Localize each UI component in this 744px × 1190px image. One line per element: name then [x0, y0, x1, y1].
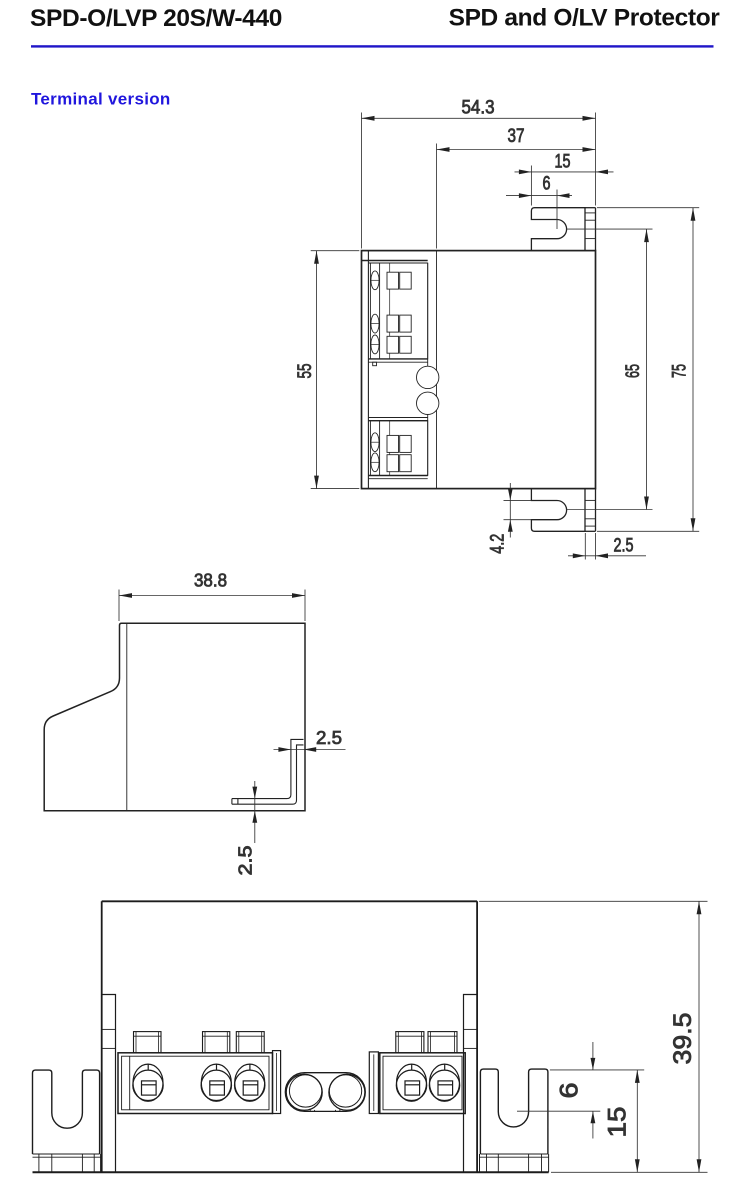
- svg-text:75: 75: [669, 364, 690, 378]
- svg-text:38.8: 38.8: [194, 569, 227, 590]
- svg-text:2.5: 2.5: [316, 727, 342, 748]
- svg-text:6: 6: [543, 173, 551, 194]
- svg-text:SPD and O/LV Protector: SPD and O/LV Protector: [449, 5, 721, 32]
- svg-text:15: 15: [555, 152, 571, 173]
- svg-text:65: 65: [623, 364, 644, 378]
- svg-text:6: 6: [556, 1083, 584, 1099]
- svg-text:Terminal version: Terminal version: [31, 90, 171, 109]
- svg-text:39.5: 39.5: [669, 1013, 697, 1065]
- svg-text:54.3: 54.3: [462, 97, 495, 118]
- svg-text:SPD-O/LVP 20S/W-440: SPD-O/LVP 20S/W-440: [30, 5, 282, 32]
- svg-text:55: 55: [295, 364, 316, 379]
- svg-text:4.2: 4.2: [487, 534, 508, 554]
- svg-text:2.5: 2.5: [234, 846, 255, 876]
- svg-text:2.5: 2.5: [614, 535, 634, 556]
- svg-text:37: 37: [508, 126, 525, 147]
- svg-text:15: 15: [604, 1107, 632, 1138]
